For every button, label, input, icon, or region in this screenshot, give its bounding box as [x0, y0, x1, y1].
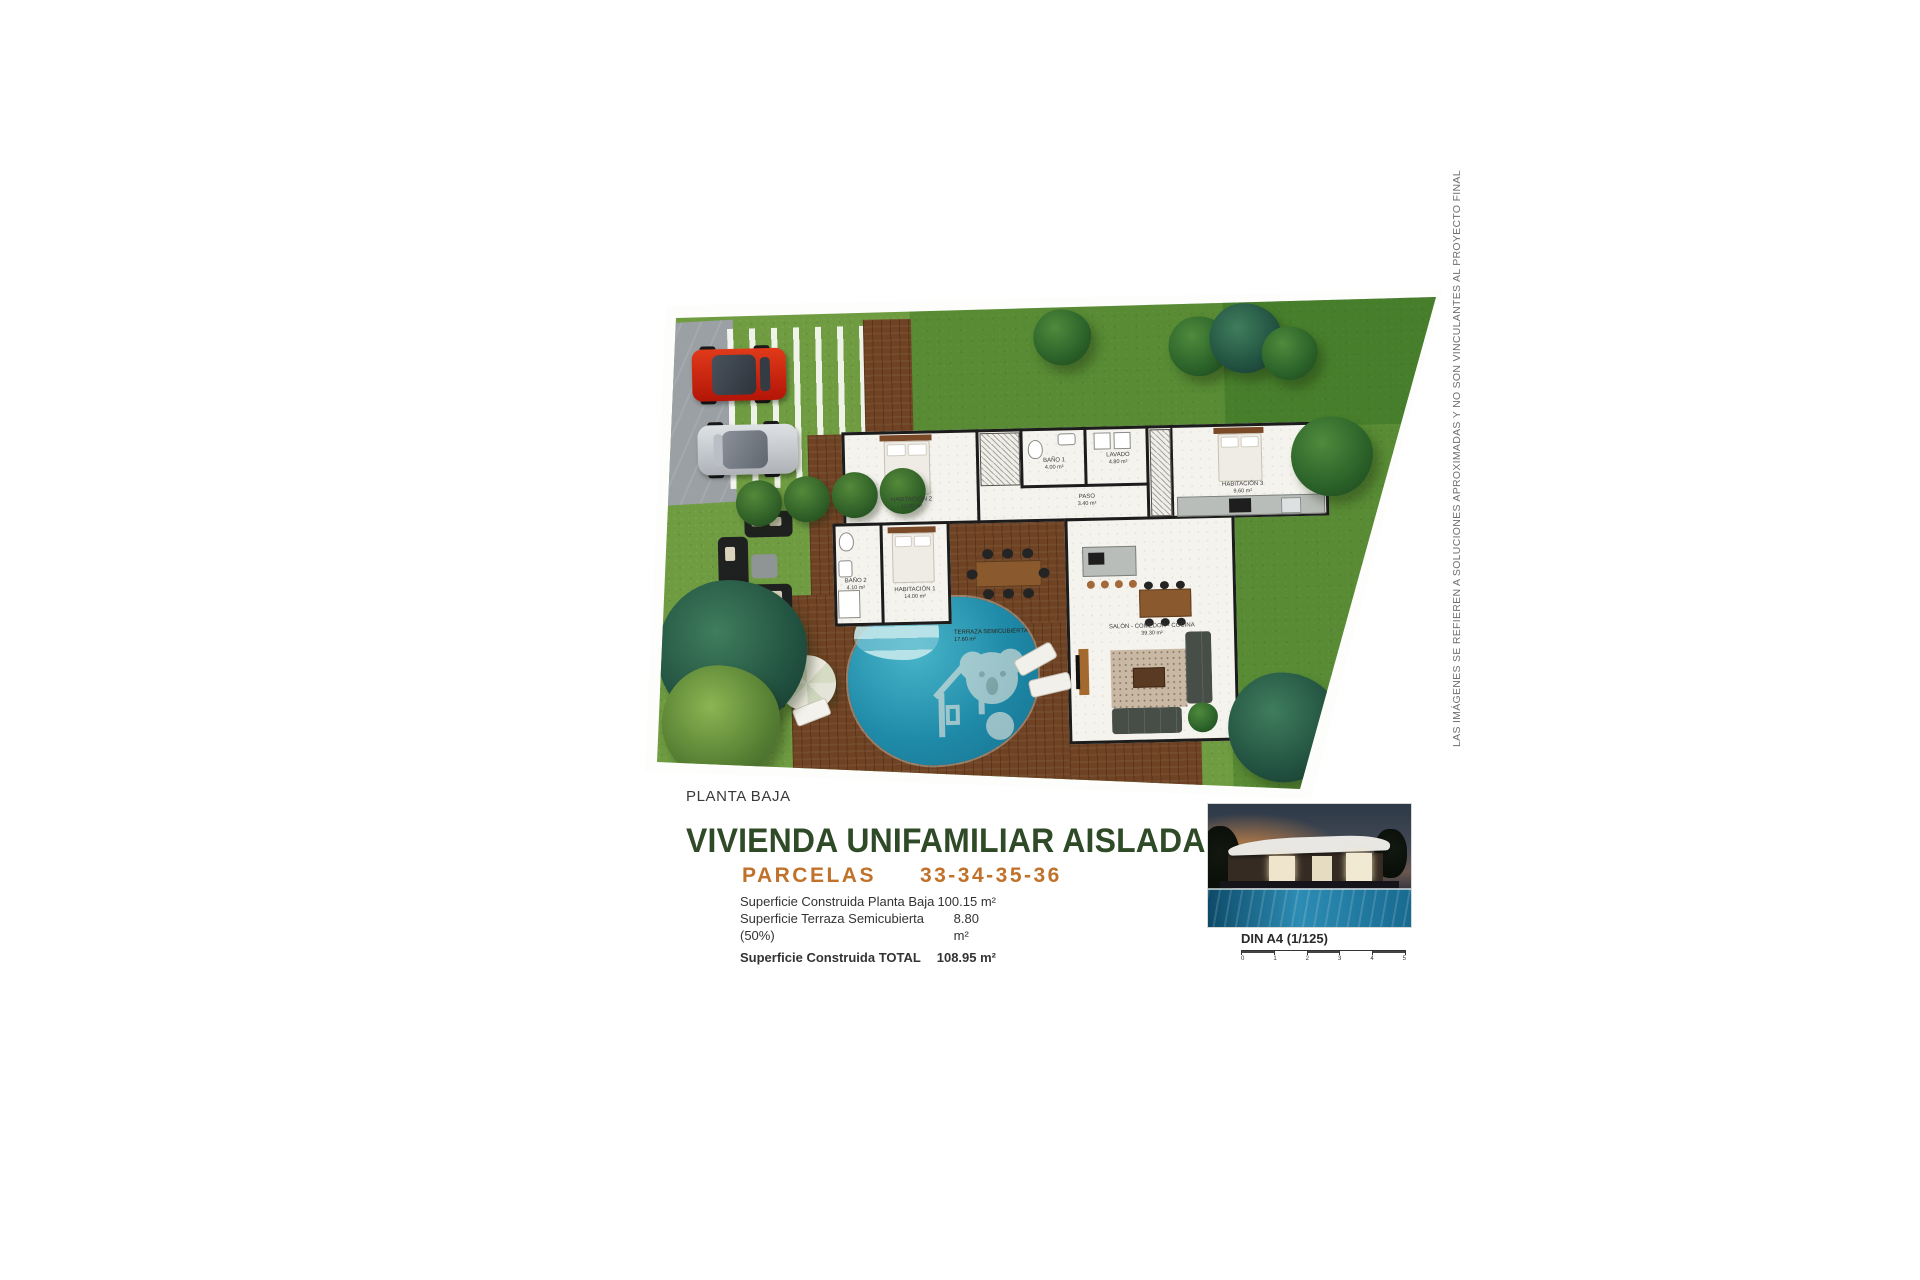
photo-terrace	[1220, 881, 1399, 887]
plan-sheet: HABITACIÓN 2 11.00 m² BAÑO 1 4.00 m² LAV…	[630, 290, 1445, 802]
scale-tick: 2	[1306, 956, 1309, 962]
room-area: 11.00 m²	[901, 504, 922, 511]
parcels-row: PARCELAS 33-34-35-36	[742, 864, 1062, 888]
island-hob	[1088, 552, 1104, 564]
room-area: 4.10 m²	[847, 585, 866, 592]
area-value: 8.80 m²	[954, 910, 996, 944]
room-area: 4.00 m²	[1045, 465, 1064, 472]
scale-label: DIN A4 (1/125)	[1241, 931, 1328, 946]
area-value: 100.15 m²	[937, 893, 996, 910]
page: HABITACIÓN 2 11.00 m² BAÑO 1 4.00 m² LAV…	[0, 0, 1920, 1280]
pillow	[1241, 436, 1259, 447]
pillow	[908, 443, 927, 455]
room-area: 14.00 m²	[904, 594, 926, 601]
sofa-south	[1112, 707, 1183, 735]
scale-bar: 0 1 2 3 4 5	[1241, 950, 1406, 962]
plan-content: HABITACIÓN 2 11.00 m² BAÑO 1 4.00 m² LAV…	[624, 281, 1450, 811]
photo-pool	[1208, 889, 1411, 927]
area-label: Superficie Construida Planta Baja	[740, 893, 934, 910]
area-table: Superficie Construida Planta Baja 100.15…	[740, 893, 996, 966]
room-label-habitacion-2: HABITACIÓN 2 11.00 m²	[859, 496, 964, 512]
room-label-terraza: TERRAZA SEMICUBIERTA 17.60 m²	[954, 628, 1049, 644]
car-cabin	[712, 354, 757, 395]
outdoor-table	[751, 554, 778, 579]
pillow	[895, 536, 912, 547]
site-plan: HABITACIÓN 2 11.00 m² BAÑO 1 4.00 m² LAV…	[630, 290, 1445, 802]
closet-hatch-2	[1149, 429, 1172, 516]
dining-table-indoor	[1139, 589, 1192, 618]
car-cabin	[721, 430, 768, 469]
room-area: 3.40 m²	[1078, 501, 1097, 508]
cushion	[725, 547, 735, 561]
area-label: Superficie Terraza Semicubierta (50%)	[740, 910, 954, 944]
pillow	[887, 444, 906, 456]
room-label-habitacion-3: HABITACIÓN 3 9.60 m²	[1201, 480, 1285, 496]
parcels-numbers: 33-34-35-36	[920, 864, 1062, 888]
room-area: 39.30 m²	[1141, 630, 1163, 637]
plan-ground: HABITACIÓN 2 11.00 m² BAÑO 1 4.00 m² LAV…	[630, 290, 1445, 802]
area-label: Superficie Construida TOTAL	[740, 949, 921, 966]
photo-window-2	[1312, 856, 1332, 882]
photo-window-3	[1346, 853, 1372, 881]
car-silver	[697, 423, 798, 475]
plan-caption: PLANTA BAJA	[686, 788, 791, 805]
pillow	[914, 535, 931, 546]
photo-pool-edge	[1208, 888, 1411, 890]
disclaimer-vertical: LAS IMÁGENES SE REFIEREN A SOLUCIONES AP…	[1451, 307, 1465, 747]
washer-1	[1093, 432, 1110, 449]
room-area: 9.60 m²	[1233, 488, 1252, 495]
room-area: 4.80 m²	[1109, 459, 1128, 466]
house-photo	[1208, 804, 1411, 927]
closet-hatch-1	[979, 432, 1020, 486]
car-windshield	[713, 434, 723, 466]
scale-segment	[1339, 951, 1372, 955]
scale-segment	[1274, 951, 1307, 955]
koala-house-watermark-icon	[920, 633, 1031, 747]
scale-tick: 3	[1338, 956, 1341, 962]
scale-tick: 4	[1370, 956, 1373, 962]
parcels-label: PARCELAS	[742, 864, 876, 888]
room-label-bano-2: BAÑO 2 4.10 m²	[831, 578, 881, 593]
scale-tick: 0	[1241, 956, 1244, 962]
toilet-bano1	[1028, 440, 1043, 459]
room-name: TERRAZA SEMICUBIERTA	[954, 628, 1028, 637]
toilet-bano2	[839, 532, 854, 551]
room-label-paso: PASO 3.40 m²	[1059, 493, 1115, 508]
deck-south	[1069, 736, 1202, 791]
room-label-bano-1: BAÑO 1 4.00 m²	[1026, 457, 1082, 472]
scale-segment	[1241, 951, 1274, 955]
room-label-salon: SALÓN - COMEDOR - COCINA 39.30 m²	[1094, 622, 1210, 638]
sofa-east	[1185, 631, 1213, 704]
shower-bano2	[838, 590, 861, 618]
scale-segment	[1307, 951, 1340, 955]
tree-southeast	[1227, 671, 1341, 784]
coffee-table	[1133, 667, 1165, 688]
washer-2	[1113, 432, 1130, 449]
car-rear-window	[760, 357, 771, 391]
sink-bano2	[838, 560, 852, 577]
scale-tick: 5	[1403, 956, 1406, 962]
room-area: 17.60 m²	[954, 637, 976, 644]
scale-bar-segments	[1241, 950, 1406, 955]
sink-bano1	[1057, 433, 1075, 445]
area-row: Superficie Construida Planta Baja 100.15…	[740, 893, 996, 910]
tv-screen	[1075, 655, 1080, 689]
area-row: Superficie Terraza Semicubierta (50%) 8.…	[740, 910, 996, 944]
kitchen-sink	[1281, 497, 1301, 513]
scale-tick: 1	[1273, 956, 1276, 962]
main-title: VIVIENDA UNIFAMILIAR AISLADA	[686, 822, 1206, 861]
car-red	[691, 348, 786, 402]
room-label-habitacion-1: HABITACIÓN 1 14.00 m²	[881, 586, 949, 601]
deck-path	[863, 319, 914, 440]
pillow	[1221, 436, 1239, 447]
area-value: 108.95 m²	[937, 949, 996, 966]
photo-window-1	[1269, 856, 1295, 882]
kitchen-hob	[1229, 498, 1251, 512]
scale-tick-labels: 0 1 2 3 4 5	[1241, 956, 1406, 962]
area-row-total: Superficie Construida TOTAL 108.95 m²	[740, 949, 996, 966]
room-label-lavado: LAVADO 4.80 m²	[1090, 452, 1146, 467]
scale-segment	[1372, 951, 1406, 955]
outdoor-dining-table	[975, 560, 1042, 587]
